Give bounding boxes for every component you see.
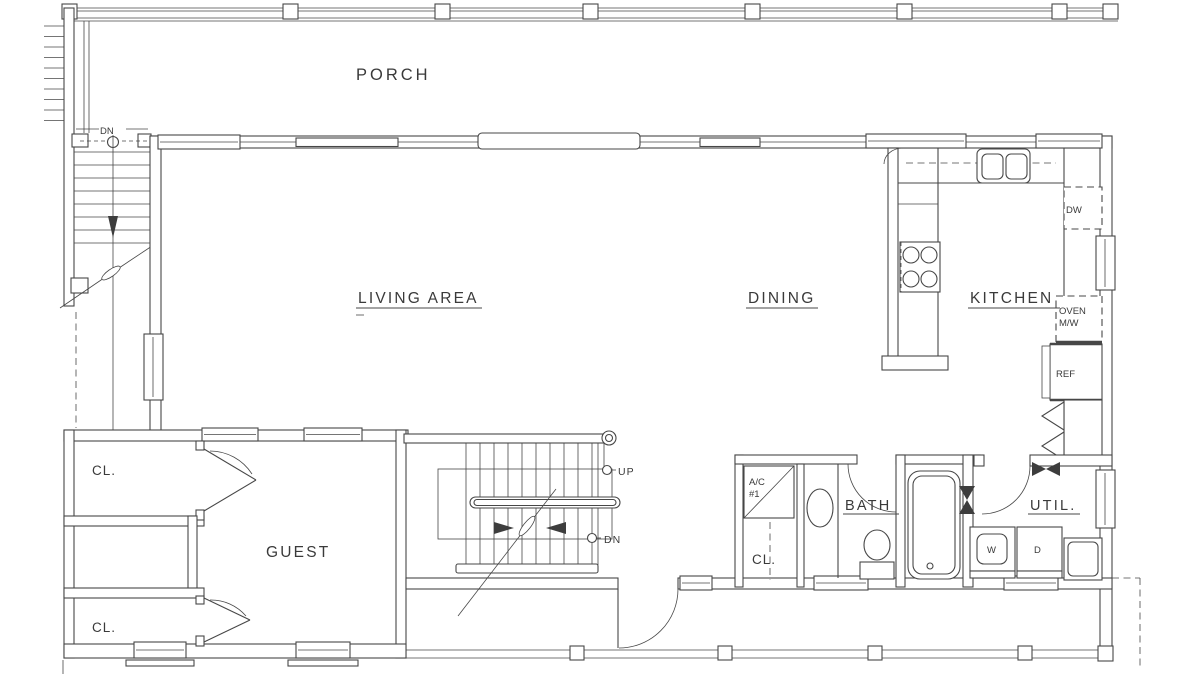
window <box>1096 470 1115 528</box>
window-sill <box>126 660 194 666</box>
dishwasher-label: DW <box>1066 205 1082 216</box>
deck-opening <box>1047 84 1097 110</box>
railing-post <box>1052 4 1067 19</box>
handrail <box>470 497 620 508</box>
wall <box>974 455 984 466</box>
utility-label: UTIL. <box>1030 498 1076 514</box>
porch-deck: DN PORCH <box>44 4 1118 430</box>
bath-label: BATH <box>845 498 891 514</box>
ac-unit-label-line2: #1 <box>749 489 760 500</box>
dining-area: DINING <box>746 290 818 308</box>
wall <box>196 636 204 646</box>
closet-lower: CL. <box>64 588 250 646</box>
down-arrow <box>108 216 118 238</box>
kitchen-sink <box>977 149 1030 183</box>
vanity-sink <box>807 489 833 527</box>
top-wall-fenestration <box>158 133 1102 149</box>
wall <box>196 596 204 604</box>
ac-unit-label-line1: A/C <box>749 477 765 488</box>
dryer-label: D <box>1034 545 1041 556</box>
oven-microwave: OVEN M/W <box>1056 296 1102 342</box>
railing-post <box>283 4 298 19</box>
stair-guard-rail <box>404 434 604 443</box>
dishwasher: DW <box>1064 187 1102 229</box>
wall-base <box>882 356 948 370</box>
closet-upper-label: CL. <box>92 463 116 478</box>
stair-post <box>72 134 88 147</box>
door-swing-arc <box>210 600 246 616</box>
wall <box>64 588 204 598</box>
wall <box>64 516 204 526</box>
closet-door-leaf <box>204 480 256 511</box>
bifold-door <box>1042 402 1064 430</box>
up-marker <box>603 466 612 475</box>
bottom-tread <box>456 564 598 573</box>
railing-post <box>1098 646 1113 661</box>
railing-post <box>583 4 598 19</box>
wall <box>1030 455 1112 466</box>
railing-post <box>1018 646 1032 660</box>
porch-stair-down-label: DN <box>100 126 114 137</box>
railing-post <box>1103 4 1118 19</box>
pantry <box>1042 400 1102 460</box>
cooktop <box>900 242 940 292</box>
wall <box>64 430 74 658</box>
porch-label: PORCH <box>356 66 431 84</box>
wall <box>64 644 406 658</box>
down-marker <box>588 534 597 543</box>
bathtub <box>908 471 960 579</box>
guest-label: GUEST <box>266 544 330 561</box>
rear-walkway <box>406 576 1140 670</box>
newel-post <box>602 431 616 445</box>
stair-rail <box>64 8 74 306</box>
wall <box>896 455 905 587</box>
window <box>296 138 398 147</box>
closet-door-leaf <box>204 598 250 620</box>
closet-hall-label: CL. <box>752 552 776 567</box>
wall <box>735 455 743 587</box>
guest-room: CL. CL. GUEST <box>63 428 408 674</box>
kitchen-label: KITCHEN <box>970 290 1053 307</box>
door-swing-arc <box>210 451 252 474</box>
window <box>700 138 760 147</box>
closet-door-leaf <box>204 449 256 480</box>
living-area: LIVING AREA <box>356 290 482 315</box>
living-area-label: LIVING AREA <box>358 290 479 307</box>
door-swing-arc <box>982 466 1030 514</box>
kitchen: DW OVEN M/W REF KITCHEN <box>882 148 1102 460</box>
door-swing-arc <box>619 589 678 648</box>
railing-post <box>745 4 760 19</box>
floor-plan-canvas: DN PORCH <box>0 0 1200 675</box>
washer-label: W <box>987 545 996 556</box>
wall-peninsula <box>888 148 898 360</box>
dryer: D <box>1017 527 1062 578</box>
deck-board-hatch-right <box>862 20 1100 131</box>
window <box>144 334 163 400</box>
railing-post <box>897 4 912 19</box>
break-squiggle <box>517 514 537 537</box>
porch-railing-top <box>62 4 1118 21</box>
utility-room: UTIL. W D <box>970 455 1112 580</box>
refrigerator: REF <box>1042 344 1102 400</box>
railing-post <box>718 646 732 660</box>
wall <box>188 516 197 592</box>
closet-door-leaf <box>204 620 250 642</box>
break-squiggle <box>100 264 122 282</box>
washer: W <box>970 527 1015 578</box>
deck-board-hatch-left <box>80 21 324 130</box>
closet-lower-label: CL. <box>92 620 116 635</box>
railing-post <box>868 646 882 660</box>
ac-closet: A/C #1 <box>744 466 794 518</box>
stair-post <box>138 134 151 147</box>
toilet <box>860 530 894 579</box>
railing-post <box>435 4 450 19</box>
direction-arrow <box>546 522 566 534</box>
bathroom: A/C #1 CL. BATH <box>735 455 980 587</box>
window <box>1096 236 1115 290</box>
exterior-stair-left: DN <box>44 8 158 430</box>
oven-label-line1: OVEN <box>1059 306 1086 317</box>
utility-sink <box>1064 538 1102 580</box>
window-sill <box>288 660 358 666</box>
railing-balusters <box>44 26 64 121</box>
wall <box>735 455 857 464</box>
dining-label: DINING <box>748 290 815 307</box>
oven-label-line2: M/W <box>1059 318 1079 329</box>
wall <box>797 464 804 587</box>
direction-arrow <box>494 522 514 534</box>
railing-post <box>570 646 584 660</box>
refrigerator-label: REF <box>1056 369 1075 380</box>
wall <box>396 430 406 658</box>
stair-down-label: DN <box>604 534 621 546</box>
stair-up-label: UP <box>618 466 635 478</box>
sliding-door <box>478 133 640 149</box>
break-line <box>458 533 522 616</box>
wall <box>406 578 618 589</box>
deck-railing-posts <box>570 646 1113 661</box>
floor-plan-drawing: DN PORCH <box>0 0 1200 675</box>
closet-upper: CL. <box>64 441 256 526</box>
wall <box>196 441 204 450</box>
porch-railing-posts <box>62 4 1118 19</box>
